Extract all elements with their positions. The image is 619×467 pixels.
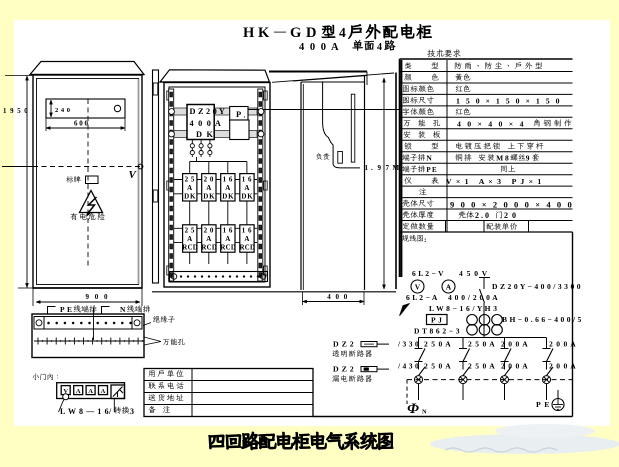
- svg-text:A: A: [76, 388, 81, 395]
- svg-text:9: 9: [526, 154, 530, 163]
- svg-text:4 0 0 A: 4 0 0 A: [299, 42, 340, 53]
- svg-text:.: .: [371, 164, 373, 172]
- svg-text:N: N: [120, 305, 126, 314]
- svg-text:RCD: RCD: [240, 245, 256, 252]
- svg-text:2 0: 2 0: [204, 176, 214, 184]
- svg-text:2 5 0 A: 2 5 0 A: [468, 340, 495, 349]
- svg-text:9 0 0: 9 0 0: [86, 293, 110, 301]
- svg-text:P E: P E: [426, 166, 437, 174]
- svg-text:1 9 5 0: 1 9 5 0: [3, 108, 29, 115]
- svg-text:2 5: 2 5: [185, 227, 195, 235]
- svg-text:DK: DK: [184, 193, 196, 201]
- svg-text:—: —: [273, 24, 287, 38]
- svg-text:/ 3 3 0: / 3 3 0: [397, 340, 419, 349]
- svg-text:K: K: [258, 25, 270, 41]
- svg-text:2 0: 2 0: [204, 227, 214, 235]
- svg-text:4 0 × 4 0 × 4: 4 0 × 4 0 × 4: [457, 120, 526, 129]
- svg-text:A: A: [225, 235, 230, 243]
- svg-text:7: 7: [386, 164, 390, 172]
- svg-text:L W 8 — 1 6: L W 8 — 1 6: [60, 407, 109, 416]
- svg-text:4 0 0: 4 0 0: [327, 293, 349, 301]
- svg-text:D Z 2 0 Y − 4 0 0 / 3 3 0 0: D Z 2 0 Y − 4 0 0 / 3 3 0 0: [492, 282, 581, 291]
- svg-text:A: A: [187, 184, 192, 192]
- svg-text:A: A: [187, 235, 192, 243]
- svg-text:L W 8 − 1 6 / Y H 3: L W 8 − 1 6 / Y H 3: [429, 304, 497, 313]
- svg-text:3: 3: [130, 407, 134, 416]
- svg-text:RCD: RCD: [182, 245, 198, 252]
- svg-text:2 5 0 A: 2 5 0 A: [424, 362, 451, 371]
- svg-text:G: G: [290, 25, 301, 41]
- svg-text:2 0 0 A: 2 0 0 A: [501, 362, 528, 371]
- svg-text:1 5 0 × 1 5 0 × 1 5 0: 1 5 0 × 1 5 0 × 1 5 0: [456, 97, 561, 106]
- svg-text:1 6: 1 6: [242, 176, 252, 184]
- svg-text:D Z 2: D Z 2: [333, 365, 354, 374]
- svg-text:D Z 2: D Z 2: [333, 340, 354, 349]
- svg-text:P E: P E: [536, 400, 550, 409]
- svg-text:A: A: [225, 184, 230, 192]
- svg-text:.: .: [244, 112, 246, 120]
- svg-text:A: A: [88, 388, 93, 395]
- svg-text:A: A: [446, 283, 452, 292]
- svg-text:N: N: [422, 409, 427, 416]
- svg-text:P E: P E: [60, 305, 73, 314]
- svg-text:2 4 0: 2 4 0: [55, 107, 71, 114]
- svg-text:M 8: M 8: [496, 154, 509, 163]
- svg-text:DK: DK: [241, 193, 253, 201]
- svg-text:4: 4: [377, 42, 382, 53]
- svg-text:Φ: Φ: [407, 401, 419, 417]
- svg-text:2 5 0 A: 2 5 0 A: [424, 340, 451, 349]
- svg-text:2 5: 2 5: [185, 176, 195, 184]
- svg-text:V × 1 A × 3 P J × 1: V × 1 A × 3 P J × 1: [446, 177, 542, 186]
- svg-text:A: A: [101, 388, 106, 395]
- svg-text:A: A: [206, 184, 211, 192]
- svg-text:1 6: 1 6: [242, 227, 252, 235]
- svg-text:4: 4: [339, 25, 346, 40]
- svg-text:D: D: [306, 25, 316, 41]
- svg-text:6 L 2 − A: 6 L 2 − A: [406, 293, 438, 302]
- svg-text:V: V: [415, 283, 421, 292]
- svg-text:DK: DK: [203, 193, 215, 201]
- svg-text:A: A: [206, 235, 211, 243]
- svg-text:6 0 0: 6 0 0: [74, 120, 89, 128]
- svg-text:M: M: [393, 164, 400, 172]
- svg-text:2 5 0 A: 2 5 0 A: [468, 362, 495, 371]
- svg-text:9: 9: [378, 164, 382, 172]
- svg-text:A: A: [244, 235, 249, 243]
- svg-text:B H − 0 . 6 6 − 4 0 0 / 5: B H − 0 . 6 6 − 4 0 0 / 5: [502, 315, 582, 324]
- svg-text:D T 8 6 2 − 3: D T 8 6 2 − 3: [414, 327, 460, 336]
- svg-text:A: A: [244, 184, 249, 192]
- svg-text:H: H: [243, 25, 255, 41]
- svg-text:1: 1: [365, 164, 369, 172]
- svg-text:4 0 0 / 2 0 0 A: 4 0 0 / 2 0 0 A: [448, 293, 498, 302]
- svg-text::: :: [424, 235, 427, 244]
- svg-text:9 0 0 × 2 0 0 0 × 4 0 0: 9 0 0 × 2 0 0 0 × 4 0 0: [450, 199, 574, 209]
- svg-text:RCD: RCD: [201, 245, 217, 252]
- svg-text:1 6: 1 6: [223, 176, 233, 184]
- svg-text:D K: D K: [196, 130, 214, 139]
- svg-text:2 0: 2 0: [504, 211, 516, 220]
- svg-text:RCD: RCD: [220, 245, 236, 252]
- svg-text:P: P: [236, 109, 241, 119]
- svg-text:2 . 0: 2 . 0: [475, 211, 489, 220]
- svg-text:4 5 0 V: 4 5 0 V: [459, 269, 488, 278]
- svg-text:DK: DK: [222, 193, 234, 201]
- svg-text:N: N: [426, 154, 432, 163]
- svg-text:4 0 0 A: 4 0 0 A: [190, 119, 223, 128]
- svg-text:D Z 2 0 Y: D Z 2 0 Y: [190, 107, 226, 116]
- svg-text:2 0 0 A: 2 0 0 A: [501, 340, 528, 349]
- svg-text:P J: P J: [431, 316, 442, 325]
- svg-text:6 L 2 − V: 6 L 2 − V: [412, 269, 444, 278]
- svg-text:/ 4 3 0: / 4 3 0: [397, 362, 419, 371]
- svg-text:1 6: 1 6: [223, 227, 233, 235]
